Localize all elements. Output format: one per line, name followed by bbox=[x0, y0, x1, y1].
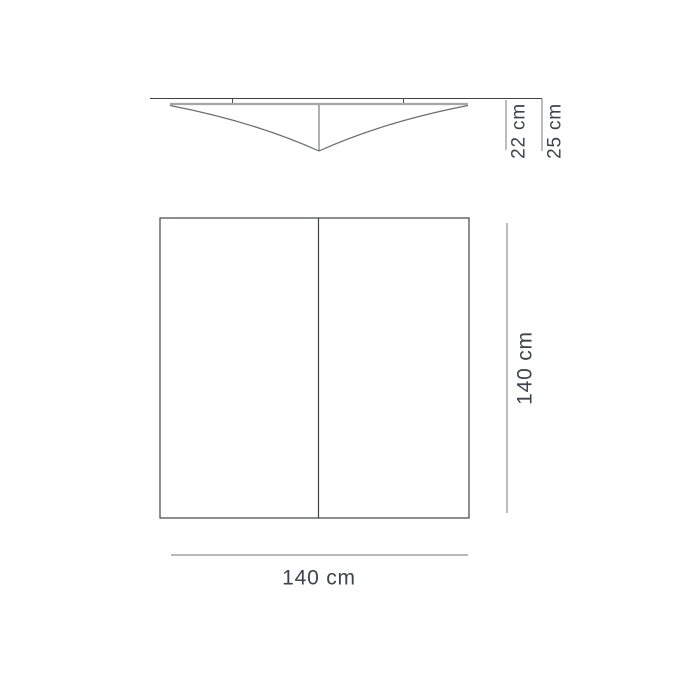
side-profile-view bbox=[150, 99, 542, 152]
plan-view bbox=[160, 218, 507, 555]
shade-right-curve bbox=[319, 106, 468, 152]
shade-left-curve bbox=[170, 106, 319, 152]
dimension-diagram: 22 cm 25 cm 140 cm 140 cm bbox=[0, 0, 681, 681]
dim-label-total-depth: 25 cm bbox=[546, 103, 565, 159]
dim-label-shade-depth: 22 cm bbox=[510, 103, 529, 159]
plan-square-outline bbox=[160, 218, 469, 518]
dim-label-plan-height: 140 cm bbox=[515, 331, 536, 405]
dim-label-plan-width: 140 cm bbox=[282, 568, 356, 589]
